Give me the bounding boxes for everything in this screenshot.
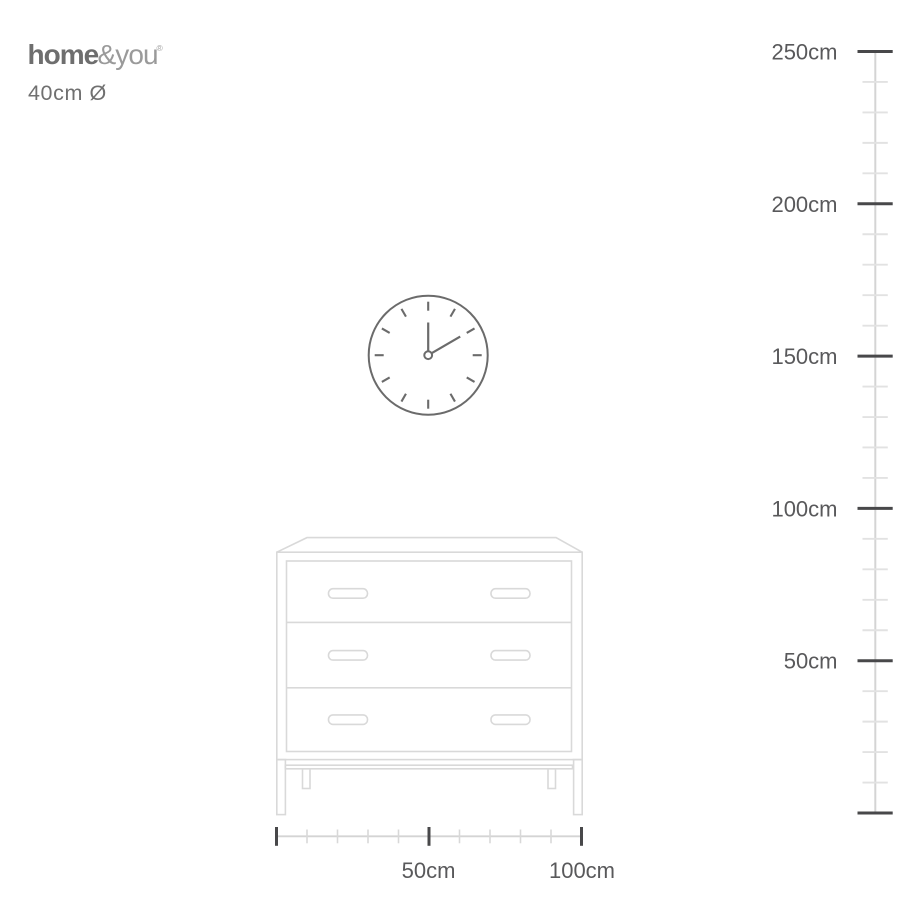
svg-text:200cm: 200cm: [771, 192, 837, 217]
svg-text:150cm: 150cm: [771, 344, 837, 369]
svg-text:100cm: 100cm: [771, 496, 837, 521]
svg-text:50cm: 50cm: [402, 858, 456, 883]
svg-text:250cm: 250cm: [771, 40, 837, 65]
svg-text:®: ®: [157, 43, 164, 53]
svg-text:&you: &you: [98, 39, 158, 70]
svg-text:40cm Ø: 40cm Ø: [28, 81, 107, 105]
svg-text:100cm: 100cm: [549, 858, 615, 883]
svg-text:home: home: [28, 39, 99, 70]
svg-text:50cm: 50cm: [784, 649, 838, 674]
